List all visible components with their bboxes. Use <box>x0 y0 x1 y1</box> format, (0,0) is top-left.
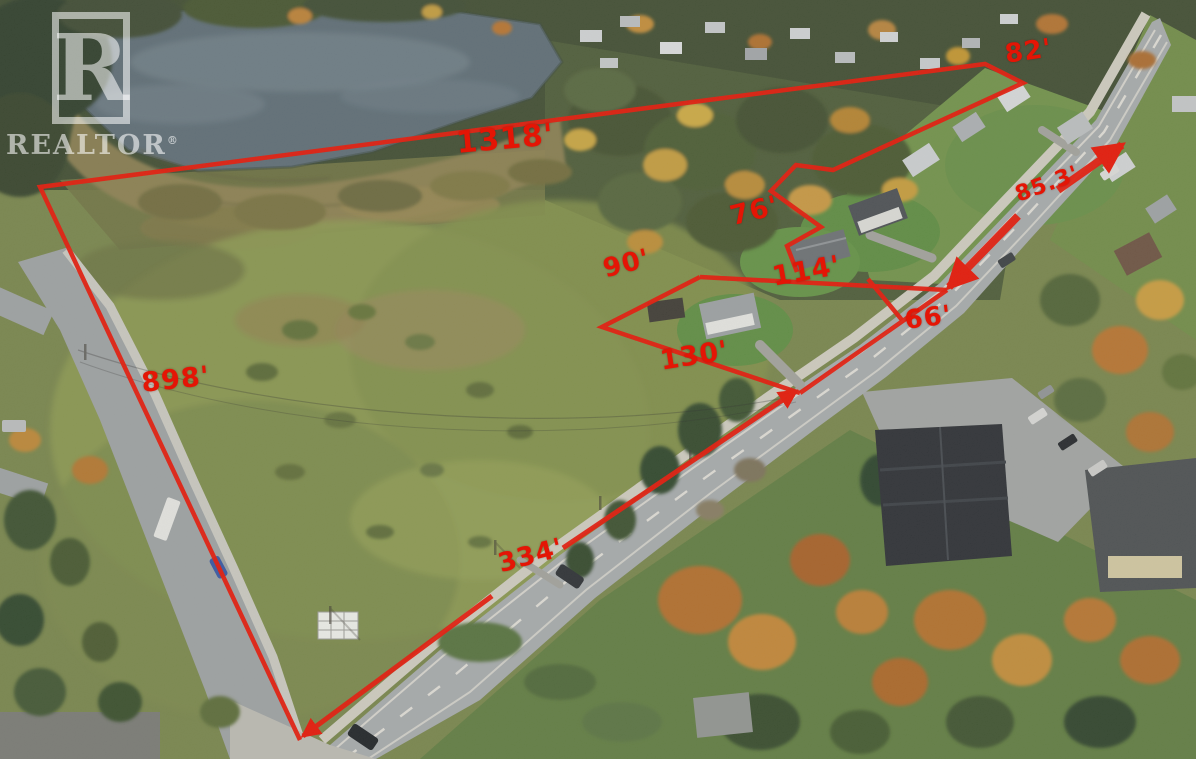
realtor-wordmark: REALTOR® <box>6 130 156 161</box>
realtor-logo-box: R <box>52 12 130 124</box>
realtor-watermark: R REALTOR® <box>6 12 156 161</box>
registered-trademark-symbol: ® <box>167 134 180 147</box>
aerial-property-photo: 1318' 82' 76' 114' 66' 85.3' 90' 130' 89… <box>0 0 1196 759</box>
realtor-brand-text: REALTOR <box>6 130 167 161</box>
measurement-road-frontage-small: 66' <box>903 300 953 336</box>
realtor-logo-r: R <box>53 22 129 114</box>
